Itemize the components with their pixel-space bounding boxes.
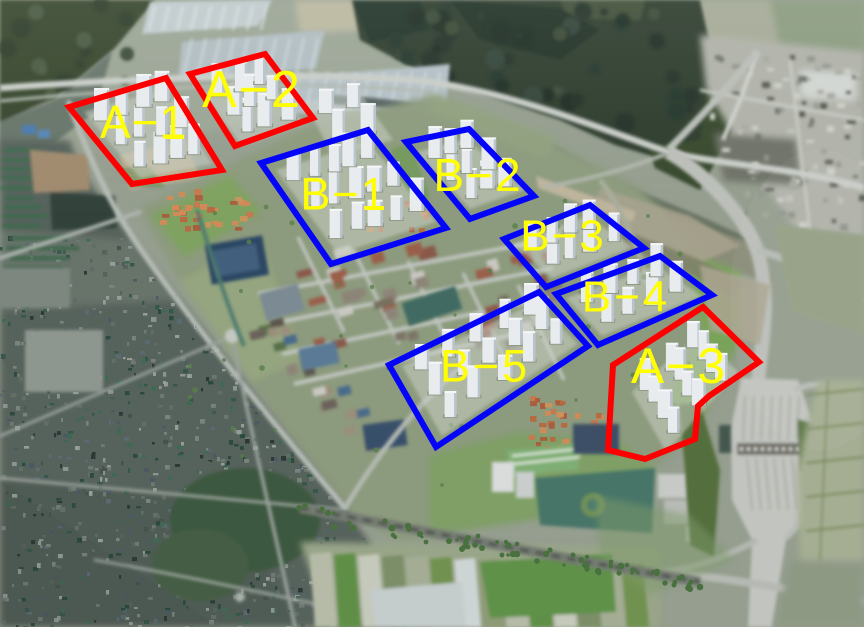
svg-text:B−5: B−5: [440, 341, 530, 392]
svg-text:B−4: B−4: [582, 273, 671, 322]
svg-text:A−1: A−1: [100, 96, 186, 148]
svg-text:A−2: A−2: [202, 61, 302, 119]
svg-text:B−2: B−2: [433, 149, 522, 201]
svg-text:A−3: A−3: [631, 338, 727, 394]
svg-text:B−3: B−3: [520, 212, 606, 261]
svg-text:B−1: B−1: [300, 169, 387, 220]
